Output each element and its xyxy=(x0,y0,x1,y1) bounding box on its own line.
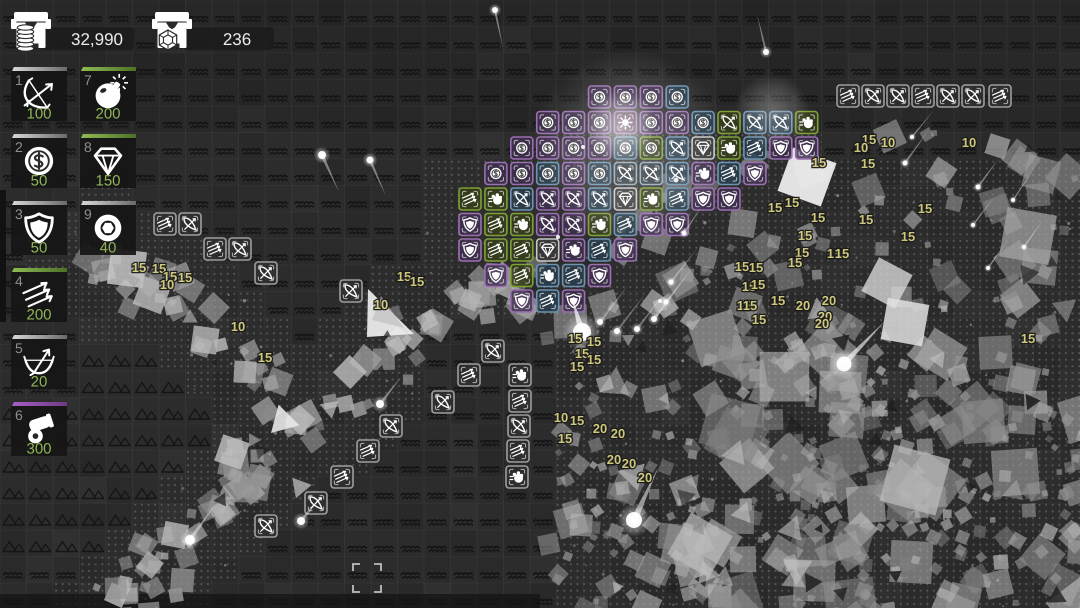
svg-text:1: 1 xyxy=(15,72,23,88)
svg-text:15: 15 xyxy=(918,201,932,216)
svg-text:15: 15 xyxy=(785,195,799,210)
svg-text:150: 150 xyxy=(95,173,120,190)
svg-text:200: 200 xyxy=(95,106,120,123)
svg-text:300: 300 xyxy=(26,441,51,458)
svg-text:15: 15 xyxy=(178,270,192,285)
svg-text:15: 15 xyxy=(798,228,812,243)
svg-text:15: 15 xyxy=(570,359,584,374)
svg-text:2: 2 xyxy=(15,139,23,155)
svg-text:20: 20 xyxy=(796,298,810,313)
svg-text:40: 40 xyxy=(100,240,117,257)
svg-text:5: 5 xyxy=(15,340,23,356)
svg-text:15: 15 xyxy=(752,312,766,327)
svg-text:4: 4 xyxy=(15,273,23,289)
svg-text:3: 3 xyxy=(15,206,23,222)
svg-text:15: 15 xyxy=(587,352,601,367)
svg-text:15: 15 xyxy=(410,274,424,289)
svg-text:10: 10 xyxy=(231,319,245,334)
svg-text:8: 8 xyxy=(84,139,92,155)
svg-text:10: 10 xyxy=(374,297,388,312)
svg-text:15: 15 xyxy=(901,229,915,244)
svg-text:20: 20 xyxy=(815,316,829,331)
svg-text:15: 15 xyxy=(735,259,749,274)
svg-text:15: 15 xyxy=(258,350,272,365)
svg-text:10: 10 xyxy=(160,277,174,292)
svg-text:15: 15 xyxy=(568,331,582,346)
svg-text:15: 15 xyxy=(558,431,572,446)
svg-text:20: 20 xyxy=(638,470,652,485)
svg-text:15: 15 xyxy=(835,246,849,261)
svg-text:15: 15 xyxy=(1021,331,1035,346)
svg-text:50: 50 xyxy=(31,240,48,257)
svg-text:15: 15 xyxy=(861,156,875,171)
svg-text:15: 15 xyxy=(132,260,146,275)
svg-text:10: 10 xyxy=(554,410,568,425)
svg-text:20: 20 xyxy=(611,426,625,441)
svg-text:15: 15 xyxy=(751,277,765,292)
svg-text:15: 15 xyxy=(771,293,785,308)
svg-text:15: 15 xyxy=(812,155,826,170)
svg-text:20: 20 xyxy=(593,421,607,436)
svg-text:10: 10 xyxy=(962,135,976,150)
svg-text:20: 20 xyxy=(622,456,636,471)
svg-text:15: 15 xyxy=(768,200,782,215)
svg-text:20: 20 xyxy=(607,452,621,467)
svg-text:50: 50 xyxy=(31,173,48,190)
svg-text:10: 10 xyxy=(881,135,895,150)
svg-text:15: 15 xyxy=(859,212,873,227)
svg-text:15: 15 xyxy=(811,210,825,225)
svg-text:200: 200 xyxy=(26,307,51,324)
svg-text:15: 15 xyxy=(743,298,757,313)
svg-text:9: 9 xyxy=(84,206,92,222)
svg-text:100: 100 xyxy=(26,106,51,123)
svg-text:20: 20 xyxy=(31,374,48,391)
svg-text:7: 7 xyxy=(84,72,92,88)
svg-text:15: 15 xyxy=(749,260,763,275)
svg-text:236: 236 xyxy=(223,30,251,49)
svg-text:15: 15 xyxy=(570,413,584,428)
svg-text:32,990: 32,990 xyxy=(71,30,123,49)
svg-text:15: 15 xyxy=(788,255,802,270)
svg-text:6: 6 xyxy=(15,407,23,423)
svg-text:20: 20 xyxy=(822,293,836,308)
svg-text:10: 10 xyxy=(854,140,868,155)
